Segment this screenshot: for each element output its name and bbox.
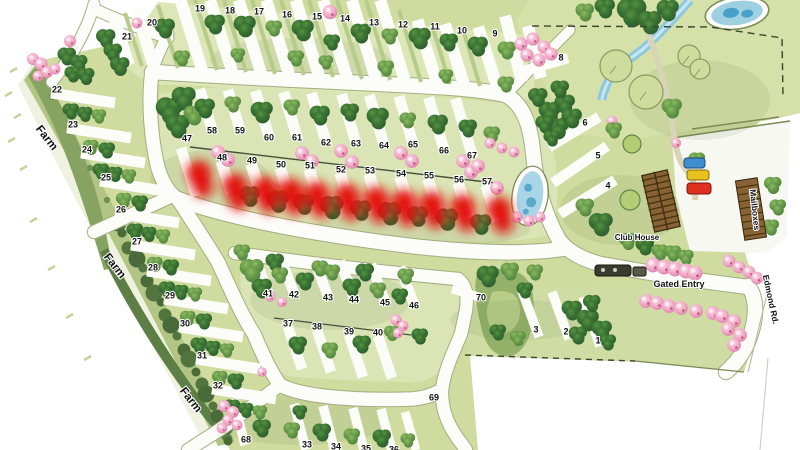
svg-text:48: 48 (217, 153, 227, 163)
svg-text:1: 1 (595, 336, 600, 346)
svg-text:50: 50 (276, 160, 286, 170)
svg-text:22: 22 (52, 85, 62, 95)
svg-text:Club House: Club House (615, 233, 660, 242)
svg-text:20: 20 (147, 18, 157, 28)
svg-text:29: 29 (165, 291, 175, 301)
svg-text:54: 54 (396, 169, 406, 179)
svg-text:53: 53 (365, 166, 375, 176)
svg-text:33: 33 (302, 440, 312, 450)
svg-text:70: 70 (476, 293, 486, 303)
svg-text:13: 13 (369, 18, 379, 28)
svg-text:41: 41 (263, 289, 273, 299)
svg-text:26: 26 (116, 205, 126, 215)
svg-text:63: 63 (351, 139, 361, 149)
svg-text:62: 62 (321, 138, 331, 148)
svg-text:10: 10 (457, 26, 467, 36)
svg-text:61: 61 (292, 133, 302, 143)
svg-text:6: 6 (582, 118, 587, 128)
svg-text:42: 42 (289, 290, 299, 300)
svg-text:47: 47 (182, 134, 192, 144)
svg-text:31: 31 (197, 351, 207, 361)
svg-text:60: 60 (264, 133, 274, 143)
svg-text:40: 40 (373, 328, 383, 338)
svg-text:17: 17 (254, 7, 264, 17)
svg-text:5: 5 (595, 151, 600, 161)
svg-text:24: 24 (82, 145, 92, 155)
svg-text:57: 57 (482, 177, 492, 187)
svg-text:44: 44 (349, 295, 359, 305)
svg-text:9: 9 (492, 29, 497, 39)
svg-text:19: 19 (195, 4, 205, 14)
svg-text:68: 68 (241, 435, 251, 445)
svg-text:32: 32 (213, 381, 223, 391)
svg-text:15: 15 (312, 12, 322, 22)
svg-text:14: 14 (340, 14, 350, 24)
svg-text:2: 2 (563, 327, 568, 337)
svg-text:8: 8 (558, 53, 563, 63)
svg-text:23: 23 (68, 120, 78, 130)
svg-text:37: 37 (283, 319, 293, 329)
svg-text:16: 16 (282, 10, 292, 20)
svg-text:39: 39 (344, 327, 354, 337)
svg-text:67: 67 (467, 151, 477, 161)
svg-text:38: 38 (312, 322, 322, 332)
svg-text:21: 21 (122, 32, 132, 42)
svg-text:65: 65 (408, 140, 418, 150)
svg-text:11: 11 (430, 22, 440, 32)
svg-text:28: 28 (148, 263, 158, 273)
svg-text:69: 69 (429, 393, 439, 403)
svg-text:66: 66 (439, 146, 449, 156)
svg-text:4: 4 (605, 181, 610, 191)
svg-text:43: 43 (323, 293, 333, 303)
svg-text:3: 3 (533, 325, 538, 335)
svg-text:46: 46 (409, 301, 419, 311)
svg-text:56: 56 (454, 175, 464, 185)
svg-text:45: 45 (380, 298, 390, 308)
svg-text:59: 59 (235, 126, 245, 136)
svg-text:12: 12 (398, 20, 408, 30)
svg-text:18: 18 (225, 6, 235, 16)
svg-text:49: 49 (247, 156, 257, 166)
svg-text:55: 55 (424, 171, 434, 181)
svg-text:25: 25 (101, 173, 111, 183)
svg-text:35: 35 (361, 444, 371, 450)
svg-text:58: 58 (207, 126, 217, 136)
svg-text:36: 36 (389, 445, 399, 450)
svg-text:34: 34 (331, 442, 341, 450)
svg-text:52: 52 (336, 165, 346, 175)
svg-text:30: 30 (180, 319, 190, 329)
svg-text:27: 27 (132, 237, 142, 247)
svg-text:64: 64 (379, 141, 389, 151)
svg-text:51: 51 (305, 161, 315, 171)
svg-text:Gated Entry: Gated Entry (653, 279, 704, 289)
